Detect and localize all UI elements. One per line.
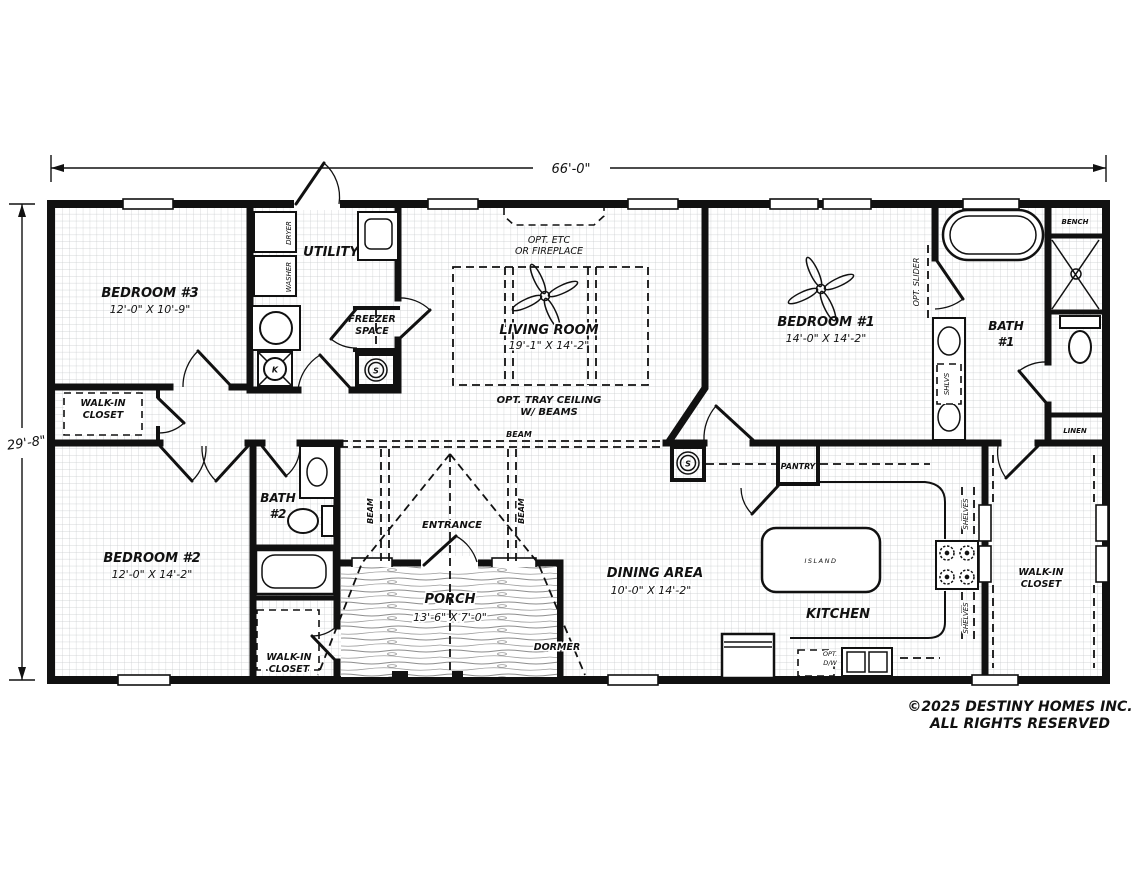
bath1-label: BATH: [988, 319, 1024, 333]
tub-bath2: [256, 550, 334, 594]
window-living-2: [628, 199, 678, 209]
shelves-label-lower: SHELVES: [962, 602, 970, 634]
dormer-label: DORMER: [534, 642, 581, 653]
shelves-label-upper: SHELVES: [962, 498, 970, 530]
pantry-label: PANTRY: [781, 462, 817, 471]
tray-label-1: OPT. TRAY CEILING: [497, 395, 602, 406]
closet-right-label-1: WALK-IN: [1018, 567, 1063, 578]
utility-label: UTILITY: [303, 245, 360, 260]
bedroom2-label: BEDROOM #2: [103, 551, 200, 566]
copyright-line2: ALL RIGHTS RESERVED: [929, 716, 1110, 732]
shlvs-label: SHLVS: [943, 372, 951, 395]
utility-exterior-door: [294, 163, 340, 210]
opt-dw-label-1: OPT.: [823, 650, 837, 658]
window-bedroom2: [118, 675, 170, 685]
overall-height-label: 29'-8": [6, 433, 47, 453]
closet3-label-1: WALK-IN: [80, 398, 125, 409]
dimension-left: 29'-8": [6, 204, 47, 680]
dining-dims: 10'-0" X 14'-2": [611, 584, 692, 597]
closet2-label-1: WALK-IN: [266, 652, 311, 663]
closet-right-label-2: CLOSET: [1021, 579, 1063, 590]
kitchen-label: KITCHEN: [806, 607, 870, 622]
water-heater: [260, 312, 292, 344]
floor-plan-page: 66'-0" 29'-8": [0, 0, 1139, 882]
island-label: ISLAND: [805, 557, 838, 565]
living-label: LIVING ROOM: [499, 323, 598, 338]
window-dining: [608, 675, 658, 685]
window-bedroom3: [123, 199, 173, 209]
linen-label: LINEN: [1063, 427, 1087, 435]
opt-dw-label-2: D/W: [823, 659, 837, 667]
furnace-symbol: K: [258, 352, 292, 386]
furnace-letter: K: [272, 366, 279, 375]
washer-label: WASHER: [285, 262, 293, 292]
beam-label-right: BEAM: [517, 498, 526, 524]
refrigerator: [722, 634, 774, 678]
tray-label-2: W/ BEAMS: [520, 407, 578, 418]
living-dims: 19'-1" X 14'-2": [509, 339, 590, 352]
window-closet-right: [972, 675, 1018, 685]
kitchen-sink: [842, 648, 892, 676]
bedroom2-dims: 12'-0" X 14'-2": [112, 568, 193, 581]
entrance-label: ENTRANCE: [422, 520, 482, 531]
dimension-top: 66'-0": [51, 155, 1106, 182]
bedroom3-label: BEDROOM #3: [101, 286, 198, 301]
bench-area: BENCH: [1062, 218, 1089, 226]
copyright-line1: ©2025 DESTINY HOMES INC.: [907, 699, 1132, 715]
fireplace-label-1: OPT. ETC: [528, 235, 571, 246]
overall-width-label: 66'-0": [551, 162, 590, 177]
window-porch-left: [352, 558, 392, 568]
copyright: ©2025 DESTINY HOMES INC. ALL RIGHTS RESE…: [907, 699, 1132, 732]
bedroom3-dims: 12'-0" X 10'-9": [110, 303, 191, 316]
dryer-label: DRYER: [285, 221, 293, 245]
beam-label-left: BEAM: [366, 498, 375, 524]
bedroom1-dims: 14'-0" X 14'-2": [786, 332, 867, 345]
dining-label: DINING AREA: [607, 566, 703, 581]
beam-label-horizontal: BEAM: [506, 430, 532, 439]
vanity-bath1: SHLVS: [933, 318, 965, 440]
bath2-number: #2: [270, 507, 287, 521]
freezer-label-2: SPACE: [355, 326, 389, 337]
window-bath1: [963, 199, 1019, 209]
closet2-label-2: CLOSET: [269, 664, 311, 675]
closet3-label-2: CLOSET: [83, 410, 125, 421]
window-porch-right: [492, 558, 536, 568]
fireplace-label-2: OR FIREPLACE: [515, 246, 583, 257]
garden-tub: [943, 210, 1043, 260]
bath2-label: BATH: [260, 491, 296, 505]
floor-plan-svg: 66'-0" 29'-8": [0, 0, 1139, 882]
smoke-letter-1: S: [373, 367, 379, 376]
smoke-letter-2: S: [685, 460, 691, 469]
bath1-number: #1: [998, 335, 1015, 349]
porch-post-1: [392, 671, 408, 682]
porch-post-2: [452, 671, 463, 682]
window-bedroom1-1: [770, 199, 818, 209]
bedroom1-label: BEDROOM #1: [777, 315, 874, 330]
kitchen-island: ISLAND: [762, 528, 880, 592]
window-living-1: [428, 199, 478, 209]
range: [936, 541, 978, 589]
vanity-bath2: [300, 446, 335, 498]
toilet-bath2: [288, 506, 334, 536]
freezer-label-1: FREEZER: [348, 314, 395, 325]
bench-label: BENCH: [1062, 218, 1089, 226]
opt-slider-label: OPT. SLIDER: [912, 258, 921, 307]
window-bedroom1-2: [823, 199, 871, 209]
